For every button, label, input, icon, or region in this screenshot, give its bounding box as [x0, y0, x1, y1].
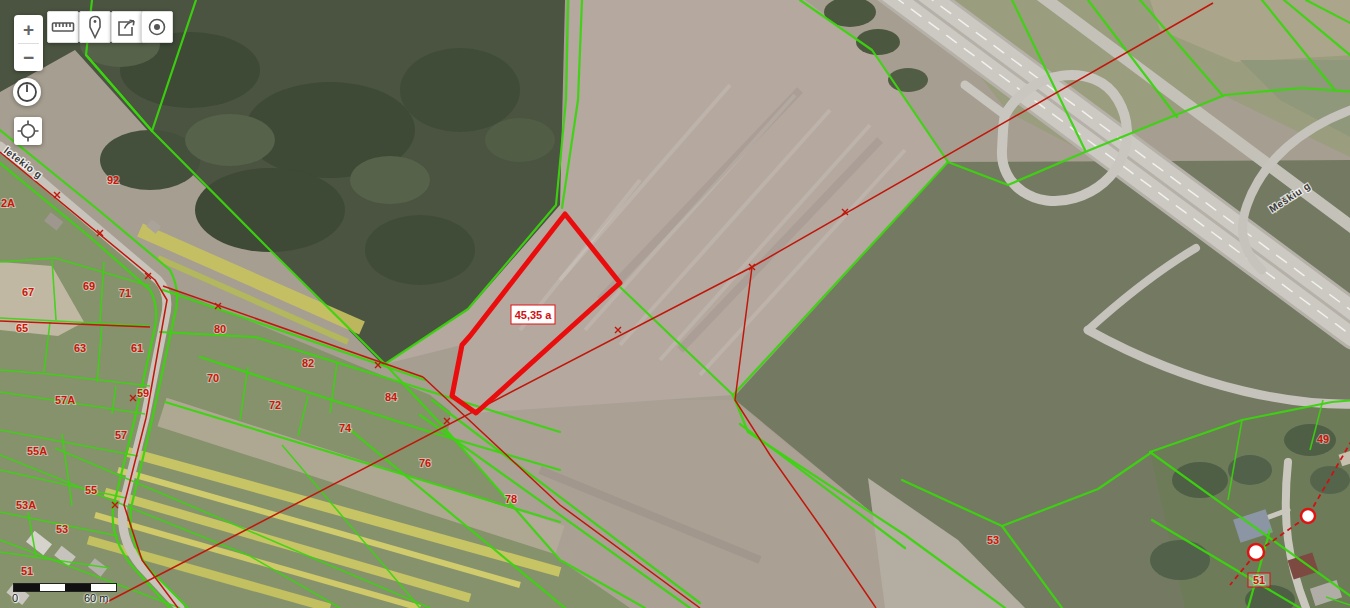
parcel-number: 70: [207, 372, 219, 384]
parcel-number: 55: [85, 484, 97, 496]
parcel-number: 59: [137, 387, 149, 399]
measure-button[interactable]: [47, 11, 79, 43]
parcel-area-value: 45,35 a: [515, 309, 553, 321]
parcel-area-label: 45,35 a: [511, 305, 555, 324]
scale-zero-label: 0: [12, 592, 18, 604]
survey-point-marker: [1301, 509, 1315, 523]
parcel-number: 57A: [55, 394, 75, 406]
clock-icon: [13, 78, 41, 106]
pin-icon: [81, 13, 109, 41]
marker-button[interactable]: [79, 11, 111, 43]
parcel-number: 82: [302, 357, 314, 369]
parcel-number: 71: [119, 287, 131, 299]
parcel-number: 69: [83, 280, 95, 292]
parcel-number: 72: [269, 399, 281, 411]
export-button[interactable]: [111, 11, 143, 43]
export-icon: [113, 13, 141, 41]
parcel-number: 55A: [27, 445, 47, 457]
scale-segment: [65, 584, 91, 591]
crosshair-icon: [14, 117, 42, 145]
parcel-number: 57: [115, 429, 127, 441]
parcel-number: 51: [21, 565, 33, 577]
parcel-number: 61: [131, 342, 143, 354]
parcel-number: 65: [16, 322, 28, 334]
parcel-number: 53: [56, 523, 68, 535]
parcel-number: 51: [1253, 574, 1265, 586]
parcel-number: 84: [385, 391, 398, 403]
zoom-out-button[interactable]: −: [14, 44, 43, 71]
parcel-number: 92: [107, 174, 119, 186]
scale-distance-label: 60 m: [84, 592, 108, 604]
parcel-number: 2A: [1, 197, 15, 209]
survey-point-marker: [1248, 544, 1264, 560]
zoom-control[interactable]: + −: [14, 15, 43, 71]
parcel-number: 78: [505, 493, 517, 505]
parcel-number: 67: [22, 286, 34, 298]
parcel-number: 49: [1317, 433, 1329, 445]
parcel-number: 53: [987, 534, 999, 546]
parcel-number: 80: [214, 323, 226, 335]
aerial-map-canvas[interactable]: 45,35 a letekio gMeškiu g 2A926769716580…: [0, 0, 1350, 608]
target-icon: [143, 13, 171, 41]
scale-segment: [40, 584, 66, 591]
scale-segment: [91, 584, 117, 591]
zoom-in-button[interactable]: +: [14, 16, 43, 43]
scale-segment: [14, 584, 40, 591]
map-viewport[interactable]: 45,35 a letekio gMeškiu g 2A926769716580…: [0, 0, 1350, 608]
track-position-button[interactable]: [141, 11, 173, 43]
ruler-icon: [49, 13, 77, 41]
scale-bar: [13, 583, 117, 592]
history-button[interactable]: [13, 78, 41, 106]
geolocate-button[interactable]: [14, 117, 42, 145]
parcel-number: 74: [339, 422, 352, 434]
parcel-number: 63: [74, 342, 86, 354]
parcel-number: 76: [419, 457, 431, 469]
parcel-number: 53A: [16, 499, 36, 511]
